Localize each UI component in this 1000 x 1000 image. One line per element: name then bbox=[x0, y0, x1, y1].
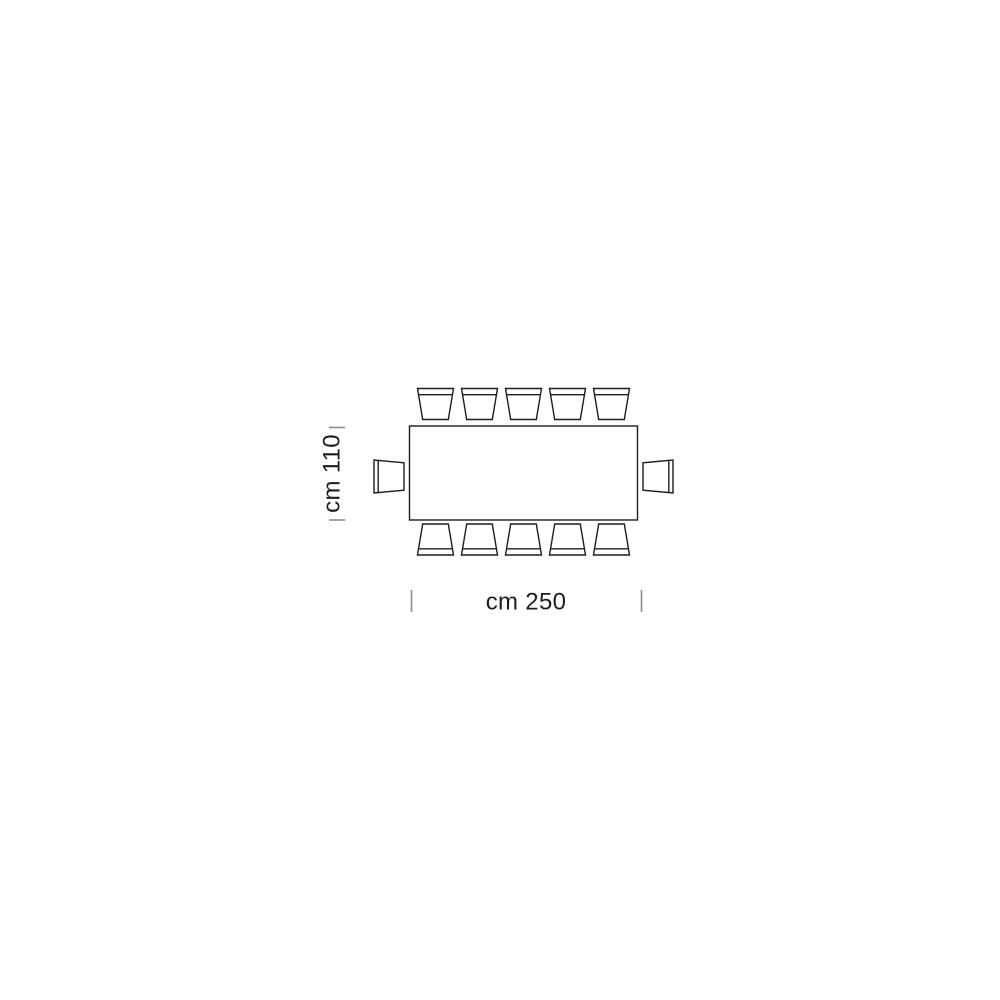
chair-bottom-5 bbox=[594, 524, 630, 555]
table-top bbox=[410, 426, 638, 520]
furniture-outlines bbox=[374, 389, 673, 556]
chair-top-4 bbox=[550, 389, 586, 420]
chair-left-head bbox=[374, 460, 404, 493]
table-dimension-diagram: cm 110 cm 250 bbox=[0, 0, 1000, 1000]
chair-bottom-3 bbox=[506, 524, 542, 555]
chair-bottom-2 bbox=[462, 524, 498, 555]
chair-top-5 bbox=[594, 389, 630, 420]
chair-top-3 bbox=[506, 389, 542, 420]
chair-top-2 bbox=[462, 389, 498, 420]
chair-right-head bbox=[643, 460, 673, 493]
chair-bottom-4 bbox=[550, 524, 586, 555]
chair-top-1 bbox=[418, 389, 454, 420]
diagram-svg: cm 110 cm 250 bbox=[0, 0, 1000, 1000]
width-dimension-label: cm 250 bbox=[486, 589, 567, 616]
depth-dimension-label: cm 110 bbox=[319, 434, 346, 513]
chair-bottom-1 bbox=[418, 524, 454, 555]
